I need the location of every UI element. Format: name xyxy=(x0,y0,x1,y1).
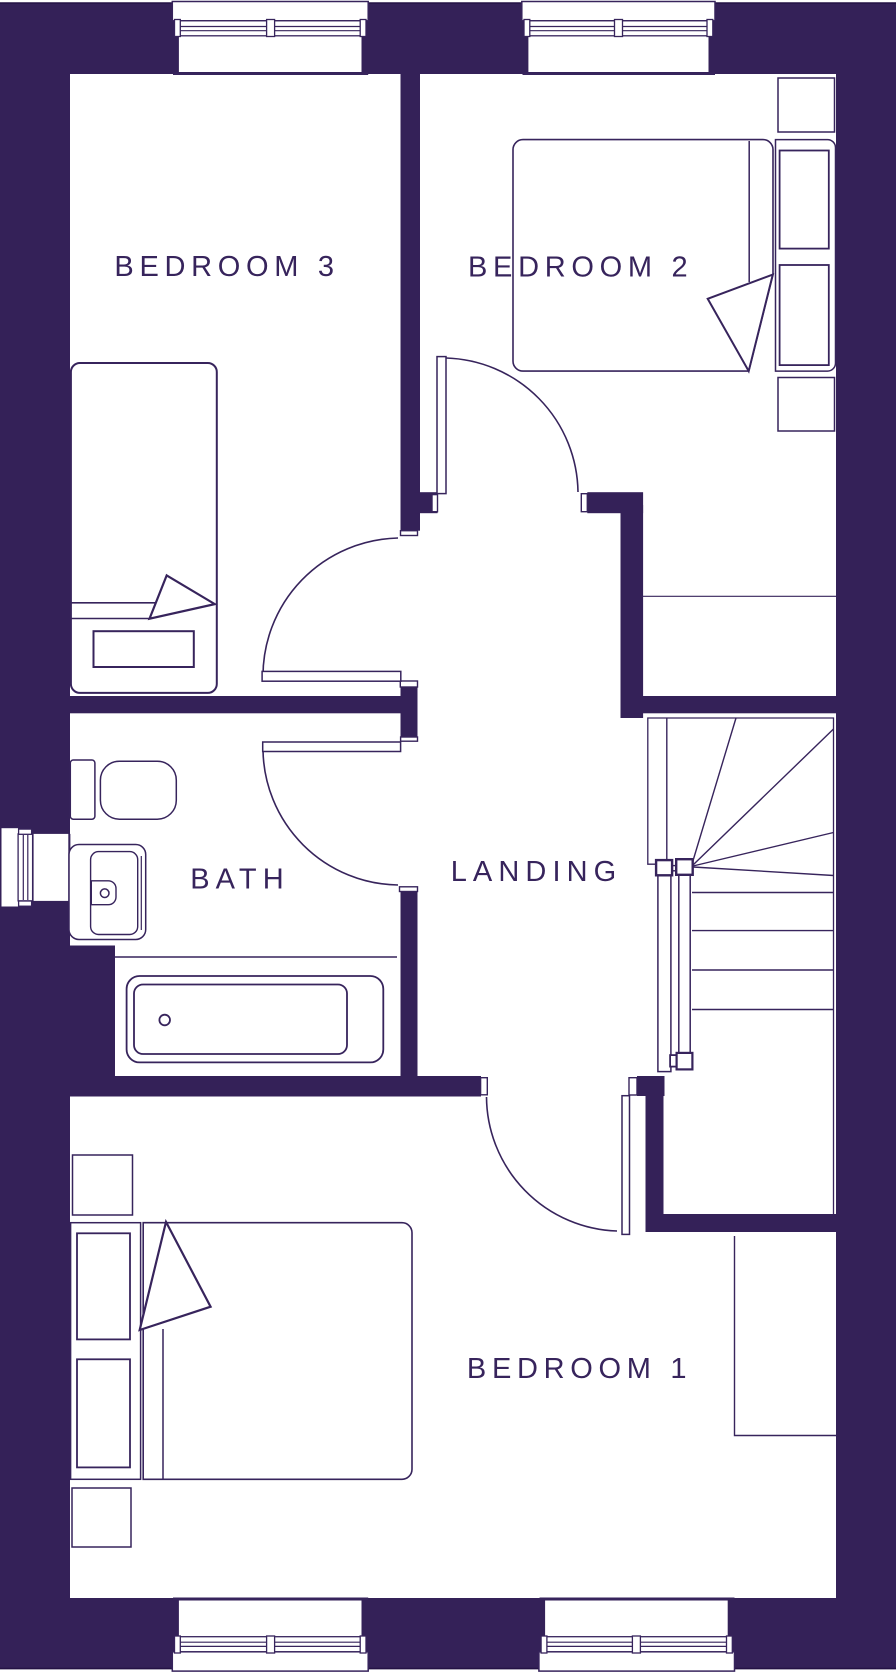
svg-text:BEDROOM 1: BEDROOM 1 xyxy=(467,1353,692,1385)
svg-text:BATH: BATH xyxy=(190,864,290,896)
svg-text:LANDING: LANDING xyxy=(451,856,623,888)
svg-text:BEDROOM 3: BEDROOM 3 xyxy=(114,251,339,283)
svg-text:BEDROOM 2: BEDROOM 2 xyxy=(468,252,693,284)
